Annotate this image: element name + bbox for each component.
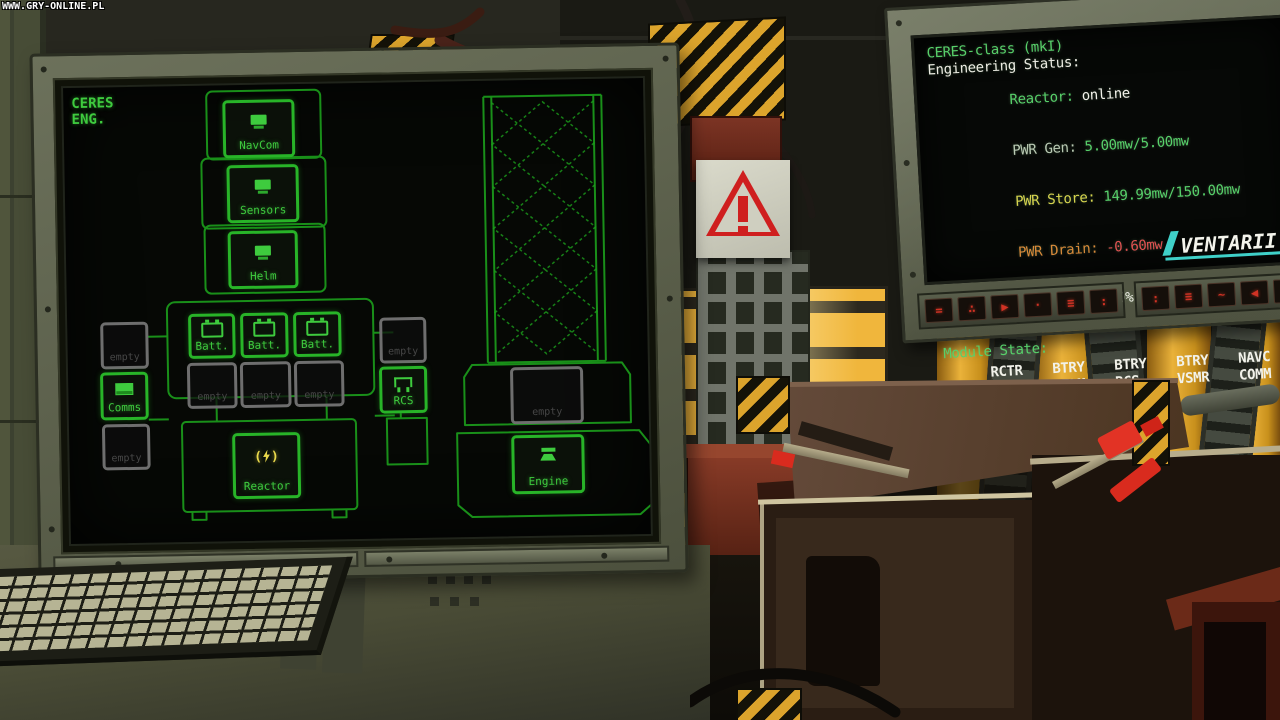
module-slot-empty[interactable]: empty <box>100 322 149 370</box>
desk-button[interactable] <box>464 575 473 584</box>
module-helm[interactable]: Helm <box>228 230 299 289</box>
module-state-cell: NAVC <box>1238 347 1280 367</box>
clamp-tool <box>770 430 930 490</box>
battery-icon <box>201 322 223 337</box>
red-structure-opening <box>1204 622 1266 720</box>
module-engine[interactable]: Engine <box>511 434 585 494</box>
panel-button[interactable]: ◀ <box>1240 280 1269 306</box>
comms-icon <box>115 383 133 395</box>
module-battery-1[interactable]: Batt. <box>188 313 236 359</box>
module-battery-2[interactable]: Batt. <box>240 312 289 358</box>
warning-sign <box>696 160 790 258</box>
module-battery-3[interactable]: Batt. <box>293 311 342 357</box>
panel-button[interactable]: ∴ <box>957 296 986 322</box>
panel-button[interactable]: ≡ <box>1056 290 1085 316</box>
screw <box>45 306 51 312</box>
module-navcom[interactable]: NavCom <box>222 99 295 158</box>
watermark: WWW.GRY-ONLINE.PL <box>2 1 104 12</box>
battery-icon <box>306 321 328 336</box>
keyboard[interactable] <box>0 557 353 668</box>
module-slot-empty[interactable]: empty <box>187 362 238 409</box>
module-slot-empty[interactable]: empty <box>379 317 427 364</box>
screw <box>904 160 910 166</box>
desk-button[interactable] <box>482 575 491 584</box>
helm-icon <box>255 246 271 256</box>
panel-button[interactable]: : <box>1089 288 1118 314</box>
panel-button[interactable]: : <box>1141 286 1170 312</box>
module-sensors[interactable]: Sensors <box>226 164 299 223</box>
status-monitor: CERES-class (mkI) Engineering Status: Re… <box>884 0 1280 343</box>
panel-button[interactable]: · <box>1023 292 1052 318</box>
module-slot-empty[interactable]: empty <box>510 366 584 424</box>
screw <box>49 526 55 532</box>
desk-button[interactable] <box>430 597 439 606</box>
module-state-cell: COMM <box>1239 364 1280 384</box>
module-rcs[interactable]: RCS <box>379 366 428 414</box>
screw <box>41 66 47 72</box>
module-slot-empty[interactable]: empty <box>102 424 151 471</box>
desk-button[interactable] <box>470 597 479 606</box>
sensors-icon <box>255 180 271 190</box>
schematic-monitor: CERES ENG. <box>29 42 688 583</box>
desk-button[interactable] <box>450 597 459 606</box>
navcom-icon <box>251 115 267 125</box>
bezel-segment <box>364 546 669 567</box>
clamp-tool <box>1048 418 1198 518</box>
clamp-grip <box>1109 457 1162 503</box>
floor-cable <box>690 640 920 720</box>
screw <box>910 272 916 278</box>
module-slot-empty[interactable]: empty <box>294 360 345 407</box>
engine-icon <box>539 448 557 461</box>
rcs-icon <box>394 377 412 387</box>
screw <box>386 556 392 562</box>
status-screen: CERES-class (mkI) Engineering Status: Re… <box>911 15 1280 286</box>
keyboard-keys[interactable] <box>0 565 332 652</box>
schematic-screen: CERES ENG. <box>61 76 653 546</box>
clamp-nose <box>1140 416 1164 437</box>
screen-header: CERES ENG. <box>71 95 114 128</box>
panel-button[interactable]: ≡ <box>1174 284 1203 310</box>
hazard-stripe-block <box>736 376 790 434</box>
exclamation-dot <box>738 226 748 235</box>
panel-button[interactable]: ~ <box>1207 282 1236 308</box>
exclamation-icon <box>738 196 748 222</box>
module-slot-empty[interactable]: empty <box>240 361 292 408</box>
screw <box>663 56 669 62</box>
screw <box>667 296 673 302</box>
panel-button[interactable]: = <box>924 298 953 324</box>
screw <box>601 553 607 559</box>
module-reactor[interactable]: () Reactor <box>232 432 301 499</box>
module-comms[interactable]: Comms <box>100 372 149 421</box>
reactor-icon: () <box>254 449 279 464</box>
game-scene: CERES-class (mkI) Engineering Status: Re… <box>0 0 1280 720</box>
screw <box>896 20 902 26</box>
panel-button[interactable]: ▶ <box>990 294 1019 320</box>
panel-button[interactable]: ∴ <box>1273 278 1280 304</box>
battery-icon <box>253 321 275 336</box>
